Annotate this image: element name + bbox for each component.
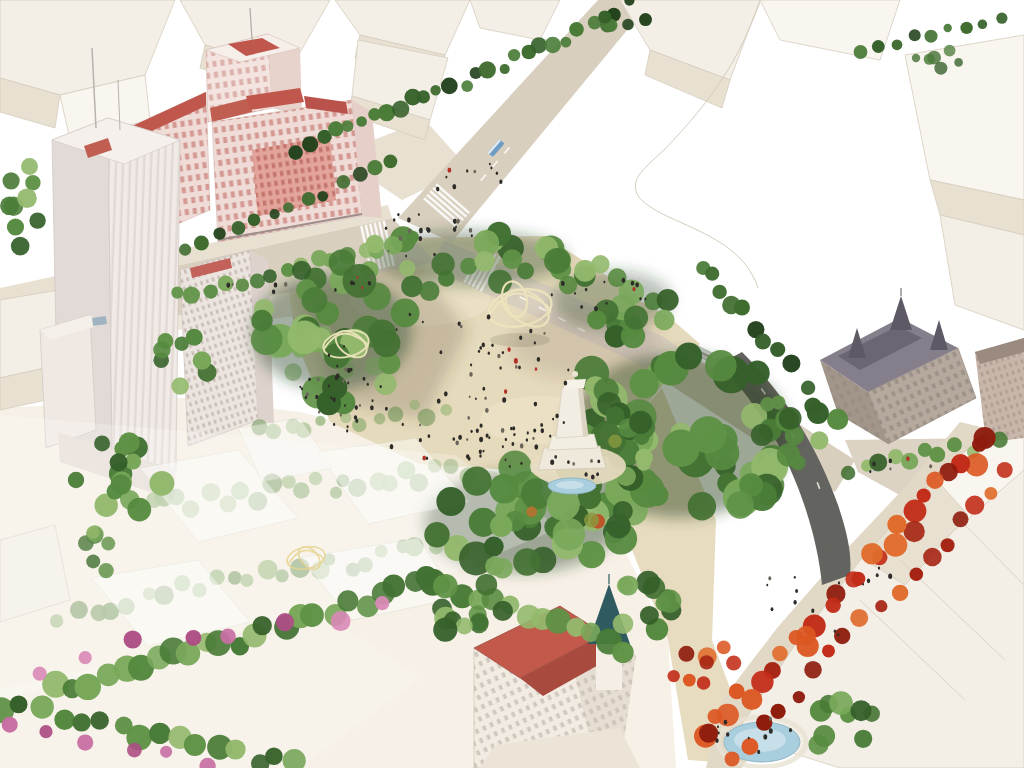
person <box>811 609 814 613</box>
tree <box>813 725 835 747</box>
person <box>408 229 411 234</box>
tree <box>484 537 504 557</box>
tree <box>561 37 572 48</box>
person <box>533 429 536 433</box>
tree <box>851 700 872 721</box>
tree <box>934 62 947 75</box>
person <box>529 329 532 333</box>
tree <box>608 435 621 448</box>
person <box>789 728 792 732</box>
person <box>471 234 473 237</box>
tree <box>186 630 202 646</box>
tree <box>374 373 396 395</box>
tree <box>86 554 100 568</box>
tree <box>944 45 956 57</box>
person <box>356 276 358 279</box>
person <box>509 465 511 468</box>
person <box>328 385 330 388</box>
tree <box>827 409 848 430</box>
tree <box>910 568 924 582</box>
person <box>467 416 470 420</box>
tree <box>613 613 634 634</box>
person <box>603 281 605 284</box>
tree <box>912 54 920 62</box>
person <box>567 369 569 372</box>
person <box>336 364 338 367</box>
person <box>574 292 576 295</box>
person <box>794 576 796 579</box>
person <box>470 430 472 433</box>
person <box>872 461 875 466</box>
tree <box>236 278 249 291</box>
tree <box>924 54 935 65</box>
tree <box>171 377 189 395</box>
tree <box>372 329 400 357</box>
person <box>499 366 501 369</box>
person <box>361 286 363 289</box>
person <box>409 313 412 317</box>
person <box>436 187 439 192</box>
person <box>488 352 490 355</box>
tree <box>72 713 90 731</box>
tree <box>183 287 200 304</box>
person <box>486 434 489 438</box>
tree <box>734 300 750 316</box>
person <box>549 434 551 437</box>
person <box>399 236 403 241</box>
tree <box>302 287 328 313</box>
person <box>534 402 538 407</box>
person <box>476 429 479 433</box>
tree <box>804 398 821 415</box>
person <box>724 720 728 725</box>
person <box>869 470 871 473</box>
tree <box>985 487 998 500</box>
tree <box>708 709 723 724</box>
tree <box>584 513 599 528</box>
person <box>490 167 492 170</box>
person <box>489 163 491 166</box>
tree <box>978 20 988 30</box>
person <box>301 387 303 390</box>
tree <box>194 236 209 251</box>
tree <box>356 116 367 127</box>
tree <box>972 437 987 452</box>
tree <box>662 430 699 467</box>
person <box>388 250 390 253</box>
aerial-rendering-plaza-espana <box>0 0 1024 768</box>
tree <box>186 329 203 346</box>
person <box>469 228 473 233</box>
person <box>563 421 565 424</box>
tree <box>705 350 737 382</box>
person <box>534 444 538 449</box>
person <box>632 287 635 291</box>
person <box>274 282 278 287</box>
tree <box>343 264 377 298</box>
person <box>453 227 456 232</box>
tree <box>544 37 561 54</box>
person <box>455 440 458 445</box>
tree <box>697 676 711 690</box>
tree <box>875 600 887 612</box>
person <box>532 437 534 440</box>
tree <box>655 595 671 611</box>
tree <box>965 496 984 515</box>
person <box>480 424 483 428</box>
person <box>470 364 472 367</box>
person <box>551 293 553 296</box>
tree <box>485 556 504 575</box>
tree <box>717 641 731 655</box>
tree <box>94 435 110 451</box>
person <box>717 725 719 728</box>
person <box>540 423 543 427</box>
tree <box>384 154 398 168</box>
tree <box>410 400 420 410</box>
person <box>343 345 345 348</box>
person <box>929 464 932 468</box>
tree <box>493 601 513 621</box>
tree <box>608 268 627 287</box>
tree <box>789 630 804 645</box>
tree <box>755 334 771 350</box>
person <box>466 169 468 172</box>
tree <box>954 58 963 67</box>
tree <box>727 491 754 518</box>
tree <box>456 618 473 635</box>
tree <box>127 498 151 522</box>
person <box>552 418 554 421</box>
person <box>479 437 483 443</box>
person <box>473 170 476 174</box>
tree <box>929 447 945 463</box>
tree <box>770 342 785 357</box>
tree <box>476 574 498 596</box>
tree <box>119 432 140 453</box>
person <box>317 377 320 381</box>
person <box>889 459 892 464</box>
person <box>433 253 436 257</box>
tree <box>250 273 265 288</box>
tree <box>101 537 115 551</box>
tree <box>826 598 841 613</box>
tree <box>872 40 885 53</box>
person <box>519 336 522 340</box>
person <box>456 219 460 224</box>
tree <box>777 443 800 466</box>
tree <box>328 121 343 136</box>
person <box>402 423 404 426</box>
person <box>440 350 443 354</box>
tree <box>153 341 170 358</box>
person <box>497 354 500 359</box>
person <box>639 297 641 300</box>
person <box>512 426 515 430</box>
person <box>867 578 870 583</box>
person <box>328 353 331 357</box>
person <box>511 442 514 446</box>
person <box>591 474 595 479</box>
person <box>452 437 455 441</box>
person <box>368 281 371 286</box>
person <box>315 395 318 399</box>
tree <box>854 730 872 748</box>
person <box>763 734 767 740</box>
person <box>479 346 482 350</box>
tree <box>569 22 584 37</box>
person <box>333 423 335 426</box>
tree <box>127 743 142 758</box>
tree <box>941 538 955 552</box>
person <box>385 407 388 411</box>
person <box>479 449 482 453</box>
tree <box>124 630 142 648</box>
person <box>502 445 504 448</box>
person <box>346 429 348 432</box>
tree <box>629 411 652 434</box>
person <box>644 298 646 301</box>
person <box>585 288 588 292</box>
person <box>550 459 554 465</box>
person <box>520 462 522 465</box>
tree <box>822 644 835 657</box>
person <box>487 314 491 319</box>
tree <box>98 563 113 578</box>
tree <box>283 202 294 213</box>
tree <box>3 172 20 189</box>
person <box>580 305 583 309</box>
person <box>769 728 773 734</box>
tree <box>845 571 861 587</box>
tree <box>688 492 716 520</box>
person <box>769 717 772 721</box>
tree <box>892 585 908 601</box>
tree <box>544 248 570 274</box>
tree <box>474 251 494 271</box>
tree <box>904 500 927 523</box>
person <box>422 321 424 324</box>
tree <box>925 30 938 43</box>
tree <box>300 603 324 627</box>
tree <box>401 276 423 298</box>
tree <box>771 396 785 410</box>
tree <box>591 255 609 273</box>
tree <box>887 515 906 534</box>
person <box>393 218 396 222</box>
person <box>590 459 593 463</box>
tree <box>909 29 921 41</box>
tree <box>683 674 696 687</box>
tree <box>441 78 458 95</box>
person <box>507 347 510 352</box>
tree <box>892 39 903 50</box>
person <box>715 738 718 743</box>
tree <box>270 209 280 219</box>
tree <box>997 462 1013 478</box>
tree <box>636 571 660 595</box>
tree <box>500 64 510 74</box>
tree <box>834 628 850 644</box>
person <box>838 581 840 584</box>
person <box>491 344 494 348</box>
tree <box>424 522 449 547</box>
tree <box>292 261 311 280</box>
tree <box>654 310 675 331</box>
tree <box>630 369 659 398</box>
person <box>768 576 771 580</box>
person <box>226 283 230 288</box>
tree <box>337 175 351 189</box>
person <box>596 472 599 476</box>
tree <box>39 725 52 738</box>
person <box>344 367 347 371</box>
tree <box>729 684 745 700</box>
person <box>444 391 448 396</box>
person <box>766 584 768 587</box>
person <box>514 358 518 364</box>
tree <box>513 548 541 576</box>
tree <box>440 404 452 416</box>
person <box>479 454 481 457</box>
person <box>793 600 796 605</box>
tree <box>861 543 883 565</box>
tree <box>953 511 969 527</box>
tree <box>7 218 24 235</box>
tree <box>587 310 606 329</box>
person <box>418 213 420 216</box>
tree <box>374 413 385 424</box>
tree <box>366 235 384 253</box>
tree <box>884 533 908 557</box>
person <box>466 438 468 441</box>
person <box>469 372 472 377</box>
tree <box>220 629 236 645</box>
tree <box>678 646 694 662</box>
person <box>447 167 451 172</box>
person <box>335 376 338 381</box>
person <box>518 366 521 370</box>
person <box>469 396 471 399</box>
tree <box>388 407 404 423</box>
tree <box>430 85 440 95</box>
tree <box>288 145 303 160</box>
person <box>232 283 234 286</box>
person <box>527 431 529 434</box>
person <box>888 573 892 579</box>
person <box>390 444 394 449</box>
tree <box>612 642 633 663</box>
person <box>748 737 750 740</box>
person <box>340 413 342 416</box>
person <box>428 434 431 438</box>
tree <box>29 212 45 228</box>
person <box>305 396 308 400</box>
tree <box>31 695 54 718</box>
person <box>543 332 545 335</box>
person <box>906 456 910 461</box>
tree <box>218 276 234 292</box>
tree <box>382 575 405 598</box>
tree <box>517 262 534 279</box>
person <box>526 438 528 441</box>
person <box>437 398 441 403</box>
person <box>332 397 335 402</box>
tree <box>668 670 680 682</box>
person <box>567 460 570 464</box>
tree <box>302 192 316 206</box>
tree <box>342 120 354 132</box>
tree <box>751 424 773 446</box>
person <box>795 589 798 593</box>
person <box>355 405 358 410</box>
tree <box>337 590 358 611</box>
person <box>452 184 456 189</box>
person <box>513 433 515 436</box>
tree <box>462 466 491 495</box>
tree <box>171 287 183 299</box>
tree <box>804 661 822 679</box>
tree <box>640 606 659 625</box>
person <box>554 455 557 459</box>
tree <box>315 416 325 426</box>
tree <box>331 611 351 631</box>
person <box>272 289 275 294</box>
person <box>534 341 536 344</box>
person <box>834 630 836 633</box>
tree <box>193 351 212 370</box>
tree <box>418 408 436 426</box>
tree <box>793 691 805 703</box>
person <box>397 213 399 216</box>
tree <box>433 618 457 642</box>
person <box>426 457 428 460</box>
tree <box>87 526 100 539</box>
tree <box>213 227 225 239</box>
tree <box>11 237 30 256</box>
tree <box>149 723 170 744</box>
person <box>718 732 720 735</box>
tree <box>302 136 318 152</box>
person <box>541 428 545 433</box>
person <box>605 302 607 305</box>
tree <box>399 260 416 277</box>
tree <box>923 548 942 567</box>
tree <box>276 613 294 631</box>
person <box>445 176 447 179</box>
tree <box>490 515 512 537</box>
person <box>427 228 431 233</box>
person <box>475 397 477 400</box>
tree <box>54 709 75 730</box>
person <box>334 288 337 292</box>
person <box>405 255 407 258</box>
tree <box>944 24 952 32</box>
tree <box>606 514 631 539</box>
tree <box>618 575 638 595</box>
person <box>837 633 839 636</box>
tree <box>635 449 653 467</box>
person <box>458 435 462 440</box>
tree <box>111 474 132 495</box>
tree <box>960 22 972 34</box>
person <box>515 365 518 369</box>
person <box>485 408 489 413</box>
tree <box>284 363 302 381</box>
tree <box>392 101 409 118</box>
tree <box>841 466 855 480</box>
tree <box>110 453 128 471</box>
